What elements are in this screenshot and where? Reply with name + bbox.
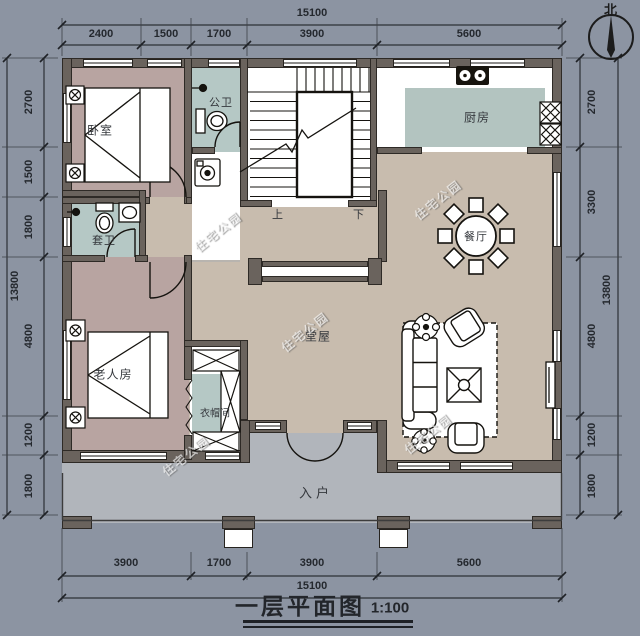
dim-left-1: 2700 [23, 90, 35, 114]
door-elder-room [150, 262, 186, 298]
fridge-icon [540, 102, 561, 145]
dim-right-5: 1800 [586, 474, 598, 498]
label-elder-room: 老人房 [93, 366, 132, 383]
dim-bottom-1: 3900 [114, 557, 138, 569]
door-entry-double [287, 433, 343, 461]
dim-top-1: 2400 [89, 28, 113, 40]
tv-icon [546, 362, 555, 408]
dim-right-4: 1200 [586, 423, 598, 447]
dim-bottom-4: 5600 [457, 557, 481, 569]
dim-right-overall: 13800 [601, 275, 613, 306]
label-entry: 入户 [299, 483, 333, 502]
dim-top-5: 5600 [457, 28, 481, 40]
sink-icon-ensuite [119, 203, 140, 222]
label-stair-down: 下 [353, 206, 365, 222]
dim-left-3: 1800 [23, 215, 35, 239]
nightstand-icons [66, 86, 85, 428]
label-stair-up: 上 [272, 206, 284, 222]
label-ensuite-bath: 套卫 [92, 232, 116, 248]
dim-left-2: 1500 [23, 160, 35, 184]
label-public-bath: 公卫 [209, 94, 233, 110]
floor-plan-canvas: 卧室 公卫 厨房 套卫 餐厅 堂屋 老人房 衣帽间 入户 上 下 北 15100… [0, 0, 640, 636]
coffee-table-icon [447, 368, 481, 402]
label-kitchen: 厨房 [464, 109, 490, 126]
door-cloak-folding [186, 380, 192, 434]
plan-scale: 1:100 [371, 600, 409, 617]
dim-top-4: 3900 [300, 28, 324, 40]
compass-icon [589, 15, 633, 59]
dim-right-3: 4800 [586, 324, 598, 348]
dim-bottom-3: 3900 [300, 557, 324, 569]
label-cloakroom: 衣帽间 [200, 405, 230, 420]
dim-right-1: 2700 [586, 90, 598, 114]
stove-icon [456, 66, 489, 85]
dim-bottom-2: 1700 [207, 557, 231, 569]
plan-title: 一层平面图 [235, 587, 365, 621]
label-bedroom: 卧室 [87, 122, 113, 139]
label-dining: 餐厅 [464, 228, 488, 244]
dim-right-2: 3300 [586, 190, 598, 214]
title-underline-1 [243, 620, 413, 623]
toilet-icon-ensuite [67, 203, 113, 233]
dim-left-4: 4800 [23, 324, 35, 348]
dim-top-3: 1700 [207, 28, 231, 40]
dim-left-6: 1800 [23, 474, 35, 498]
dim-top-overall: 15100 [297, 7, 328, 19]
label-compass-north: 北 [604, 0, 618, 19]
armchair-icon-bottom [448, 423, 484, 453]
title-underline-2 [243, 626, 413, 628]
dim-left-overall: 13800 [9, 271, 21, 302]
washer-icon [195, 159, 220, 186]
staircase-icon [240, 68, 370, 197]
dim-top-2: 1500 [154, 28, 178, 40]
dim-left-5: 1200 [23, 423, 35, 447]
